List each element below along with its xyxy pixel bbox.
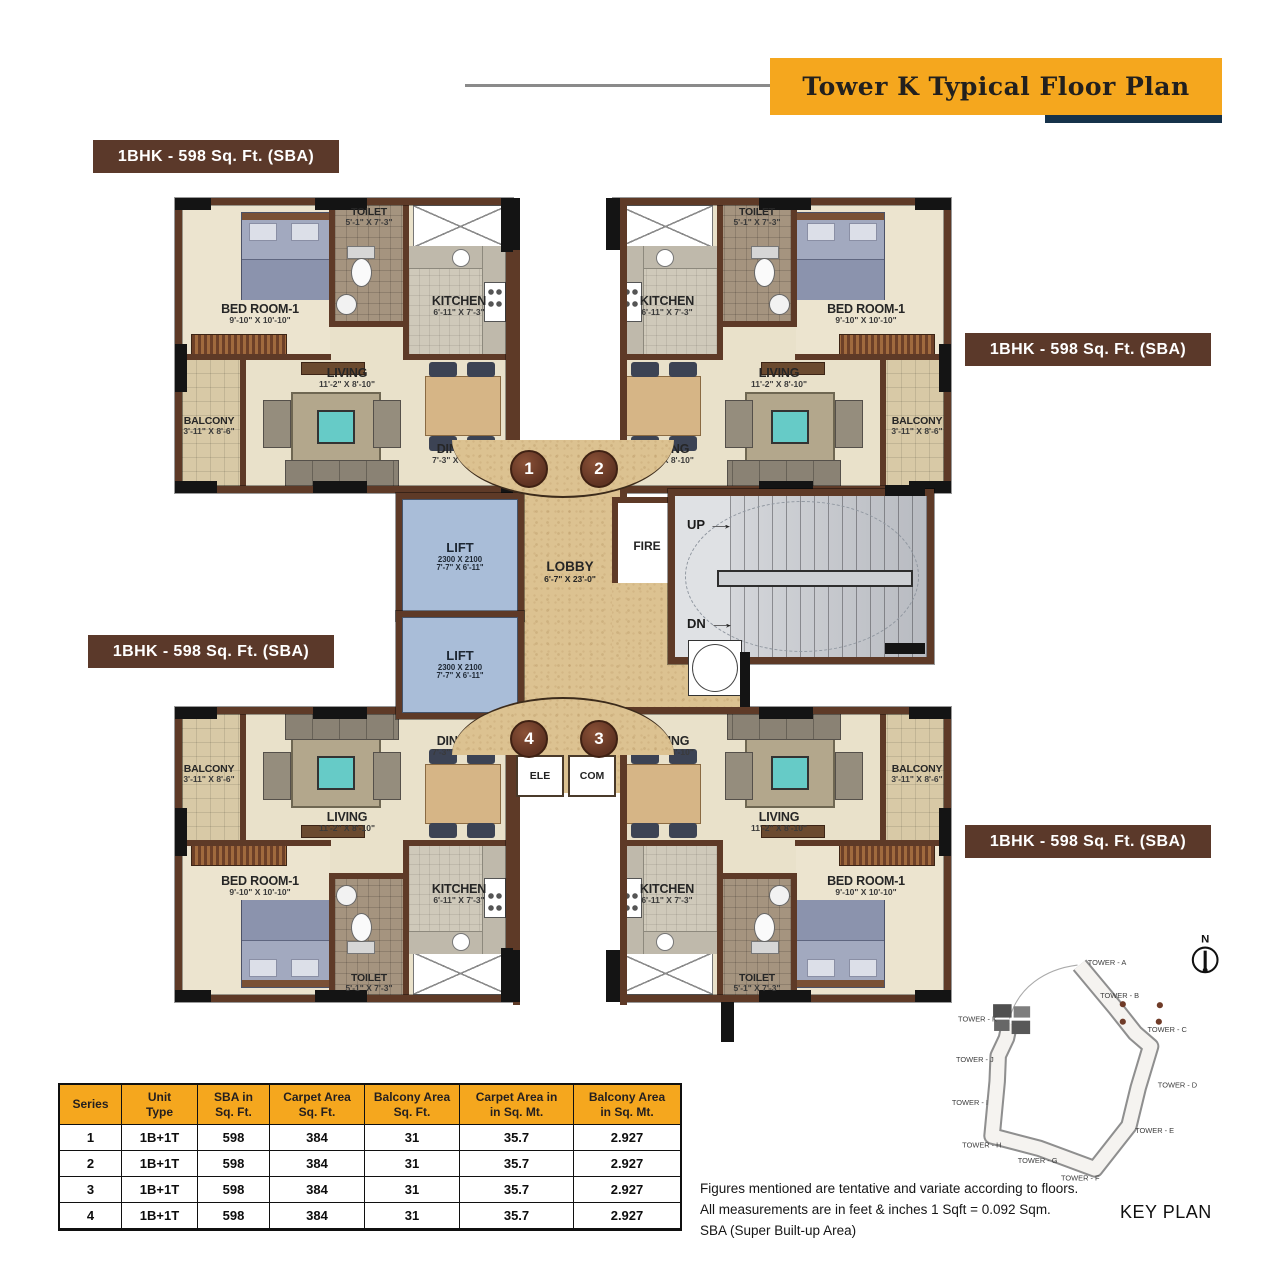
wardrobe <box>191 334 287 356</box>
disclaimer-notes: Figures mentioned are tentative and vari… <box>700 1178 1180 1241</box>
key-plan-map: N TOWER - ATOWER - BTOWER - CTOWER - DTO… <box>945 928 1245 1206</box>
bedroom-label: BED ROOM-19'-10" X 10'-10" <box>189 296 331 332</box>
kitchen-label: KITCHEN6'-11" X 7'-3" <box>617 876 717 912</box>
table-cell: 1 <box>60 1125 122 1151</box>
column <box>175 481 217 493</box>
toilet-tank <box>751 941 779 954</box>
table-cell: 384 <box>270 1203 365 1229</box>
table-cell: 598 <box>198 1203 270 1229</box>
column <box>313 481 367 493</box>
living-label: LIVING11'-2" X 8'-10" <box>291 361 403 395</box>
duct-shaft-icon <box>618 205 713 248</box>
unit-marker-3: 3 <box>580 720 618 758</box>
table-cell: 1B+1T <box>122 1177 198 1203</box>
column <box>909 707 951 719</box>
bedroom-label: BED ROOM-19'-10" X 10'-10" <box>189 868 331 904</box>
table-cell: 31 <box>365 1203 460 1229</box>
note-line: SBA (Super Built-up Area) <box>700 1220 1180 1241</box>
keyplan-tower-label: TOWER - H <box>962 1140 1001 1149</box>
armchair <box>835 400 863 448</box>
keyplan-tower-label: TOWER - J <box>956 1055 994 1064</box>
center-table <box>317 756 355 790</box>
column <box>175 707 217 719</box>
area-statement-table: SeriesUnit TypeSBA in Sq. Ft.Carpet Area… <box>58 1083 682 1231</box>
kitchen-label: KITCHEN6'-11" X 7'-3" <box>617 288 717 324</box>
lift-2: LIFT2300 X 21007'-7" X 6'-11" <box>396 611 524 719</box>
balcony-label: BALCONY3'-11" X 8'-6" <box>885 408 949 444</box>
table-cell: 4 <box>60 1203 122 1229</box>
stairs-up-label: UP→ <box>687 516 728 532</box>
table-cell: 384 <box>270 1177 365 1203</box>
keyplan-tower-label: TOWER - K <box>958 1015 997 1024</box>
armchair <box>725 752 753 800</box>
living-label: LIVING11'-2" X 8'-10" <box>723 361 835 395</box>
stair-vestibule <box>612 583 670 653</box>
dining-chair <box>467 823 495 838</box>
column <box>915 198 951 210</box>
table-header-cell: Carpet Area Sq. Ft. <box>270 1085 365 1125</box>
table-cell: 384 <box>270 1125 365 1151</box>
table-cell: 2.927 <box>574 1203 680 1229</box>
table-cell: 1B+1T <box>122 1125 198 1151</box>
kitchen-sink-icon <box>452 249 470 267</box>
table-cell: 35.7 <box>460 1125 574 1151</box>
armchair <box>373 400 401 448</box>
table-header-cell: Unit Type <box>122 1085 198 1125</box>
wash-basin-icon <box>769 885 790 906</box>
wall-stub <box>721 1002 734 1042</box>
dining-chair <box>631 823 659 838</box>
table-cell: 2 <box>60 1151 122 1177</box>
table-cell: 35.7 <box>460 1177 574 1203</box>
north-compass-icon: N <box>1193 933 1218 972</box>
bed <box>791 212 885 300</box>
wall-stub <box>506 198 520 250</box>
keyplan-tower-label: TOWER - I <box>952 1098 988 1107</box>
armchair <box>835 752 863 800</box>
duct-shaft-icon <box>618 952 713 995</box>
unit-type-label: 1BHK - 598 Sq. Ft. (SBA) <box>88 635 334 668</box>
wardrobe <box>191 844 287 866</box>
toilet-bowl-icon <box>754 913 775 942</box>
dining-chair <box>669 823 697 838</box>
wall-stub <box>885 485 925 496</box>
table-cell: 35.7 <box>460 1151 574 1177</box>
toilet-bowl-icon <box>754 258 775 287</box>
lift-1: LIFT2300 X 21007'-7" X 6'-11" <box>396 493 524 621</box>
toilet-bowl-icon <box>351 913 372 942</box>
table-cell: 31 <box>365 1151 460 1177</box>
duct-shaft-icon <box>413 952 508 995</box>
keyplan-tower-label: TOWER - C <box>1148 1025 1188 1034</box>
keyplan-tower-label: TOWER - B <box>1100 991 1139 1000</box>
unit-type-label: 1BHK - 598 Sq. Ft. (SBA) <box>965 333 1211 366</box>
wall-stub <box>506 950 520 1002</box>
keyplan-tower-label: TOWER - A <box>1088 958 1127 967</box>
note-line: All measurements are in feet & inches 1 … <box>700 1199 1180 1220</box>
balcony-label: BALCONY3'-11" X 8'-6" <box>885 756 949 792</box>
stair-handrail <box>717 570 913 587</box>
unit-marker-4: 4 <box>510 720 548 758</box>
note-line: Figures mentioned are tentative and vari… <box>700 1178 1180 1199</box>
dining-chair <box>669 362 697 377</box>
column <box>939 344 951 392</box>
living-rug <box>745 392 835 462</box>
table-header-cell: Series <box>60 1085 122 1125</box>
column <box>175 344 187 392</box>
svg-text:N: N <box>1201 933 1209 945</box>
toilet-label: TOILET5'-1" X 7'-3" <box>329 202 409 232</box>
bed <box>791 900 885 988</box>
dining-table <box>425 376 501 436</box>
lobby-label: LOBBY6'-7" X 23'-0" <box>520 560 620 584</box>
table-cell: 1B+1T <box>122 1151 198 1177</box>
armchair <box>263 752 291 800</box>
living-rug <box>745 738 835 808</box>
armchair <box>725 400 753 448</box>
table-header-cell: Balcony Area in Sq. Mt. <box>574 1085 680 1125</box>
duct-with-circle-icon <box>688 640 742 696</box>
table-cell: 598 <box>198 1125 270 1151</box>
wardrobe <box>839 844 935 866</box>
living-label: LIVING11'-2" X 8'-10" <box>723 805 835 839</box>
banner-accent-bar <box>1045 115 1222 123</box>
living-rug <box>291 392 381 462</box>
dining-table <box>625 376 701 436</box>
balcony-label: BALCONY3'-11" X 8'-6" <box>177 756 241 792</box>
duct-shaft-icon <box>413 205 508 248</box>
table-cell: 2.927 <box>574 1151 680 1177</box>
bedroom-label: BED ROOM-19'-10" X 10'-10" <box>795 296 937 332</box>
center-table <box>317 410 355 444</box>
column <box>175 808 187 856</box>
kitchen-sink-icon <box>656 249 674 267</box>
table-cell: 31 <box>365 1177 460 1203</box>
wall-stub <box>740 652 750 707</box>
table-header-cell: SBA in Sq. Ft. <box>198 1085 270 1125</box>
table-header-cell: Balcony Area Sq. Ft. <box>365 1085 460 1125</box>
page-title: Tower K Typical Floor Plan <box>802 72 1189 101</box>
wall-stub <box>606 198 620 250</box>
wash-basin-icon <box>769 294 790 315</box>
bed <box>241 212 335 300</box>
unit-marker-1: 1 <box>510 450 548 488</box>
keyplan-tower-label: TOWER - E <box>1135 1126 1174 1135</box>
kitchen-label: KITCHEN6'-11" X 7'-3" <box>409 876 509 912</box>
balcony-label: BALCONY3'-11" X 8'-6" <box>177 408 241 444</box>
kitchen-sink-icon <box>656 933 674 951</box>
armchair <box>263 400 291 448</box>
keyplan-tower-label: TOWER - D <box>1158 1081 1197 1090</box>
column <box>175 990 211 1002</box>
dining-table <box>425 764 501 824</box>
toilet-label: TOILET5'-1" X 7'-3" <box>717 202 797 232</box>
staircase: UP→ DN→ <box>668 489 934 664</box>
toilet-label: TOILET5'-1" X 7'-3" <box>329 968 409 998</box>
unit-type-label: 1BHK - 598 Sq. Ft. (SBA) <box>965 825 1211 858</box>
table-cell: 598 <box>198 1151 270 1177</box>
column <box>939 808 951 856</box>
page-title-banner: Tower K Typical Floor Plan <box>770 58 1222 115</box>
right-arrow-icon: → <box>707 615 736 631</box>
living-rug <box>291 738 381 808</box>
center-table <box>771 756 809 790</box>
wall-stub <box>885 643 925 654</box>
center-table <box>771 410 809 444</box>
table-cell: 598 <box>198 1177 270 1203</box>
armchair <box>373 752 401 800</box>
key-plan-label: KEY PLAN <box>1120 1202 1250 1223</box>
living-label: LIVING11'-2" X 8'-10" <box>291 805 403 839</box>
kitchen-label: KITCHEN6'-11" X 7'-3" <box>409 288 509 324</box>
dining-chair <box>467 362 495 377</box>
dining-chair <box>429 823 457 838</box>
unit-marker-2: 2 <box>580 450 618 488</box>
communications-shaft: COM <box>568 755 616 797</box>
table-cell: 2.927 <box>574 1177 680 1203</box>
table-header-cell: Carpet Area in in Sq. Mt. <box>460 1085 574 1125</box>
table-cell: 2.927 <box>574 1125 680 1151</box>
table-cell: 35.7 <box>460 1203 574 1229</box>
kitchen-sink-icon <box>452 933 470 951</box>
right-arrow-icon: → <box>706 516 735 532</box>
toilet-bowl-icon <box>351 258 372 287</box>
keyplan-tower-label: TOWER - G <box>1018 1156 1058 1165</box>
unit-type-label: 1BHK - 598 Sq. Ft. (SBA) <box>93 140 339 173</box>
bedroom-label: BED ROOM-19'-10" X 10'-10" <box>795 868 937 904</box>
table-cell: 31 <box>365 1125 460 1151</box>
wardrobe <box>839 334 935 356</box>
column <box>175 198 211 210</box>
column <box>759 707 813 719</box>
dining-table <box>625 764 701 824</box>
wash-basin-icon <box>336 885 357 906</box>
toilet-label: TOILET5'-1" X 7'-3" <box>717 968 797 998</box>
bed <box>241 900 335 988</box>
dining-chair <box>631 362 659 377</box>
table-cell: 3 <box>60 1177 122 1203</box>
toilet-tank <box>347 941 375 954</box>
column <box>313 707 367 719</box>
floor-plan-page: Tower K Typical Floor Plan 1BHK - 598 Sq… <box>0 0 1280 1280</box>
wall-stub <box>606 950 620 1002</box>
table-cell: 384 <box>270 1151 365 1177</box>
dining-chair <box>429 362 457 377</box>
electrical-shaft: ELE <box>516 755 564 797</box>
table-cell: 1B+1T <box>122 1203 198 1229</box>
wash-basin-icon <box>336 294 357 315</box>
header-rule <box>465 84 770 87</box>
stairs-down-label: DN→ <box>687 615 729 631</box>
